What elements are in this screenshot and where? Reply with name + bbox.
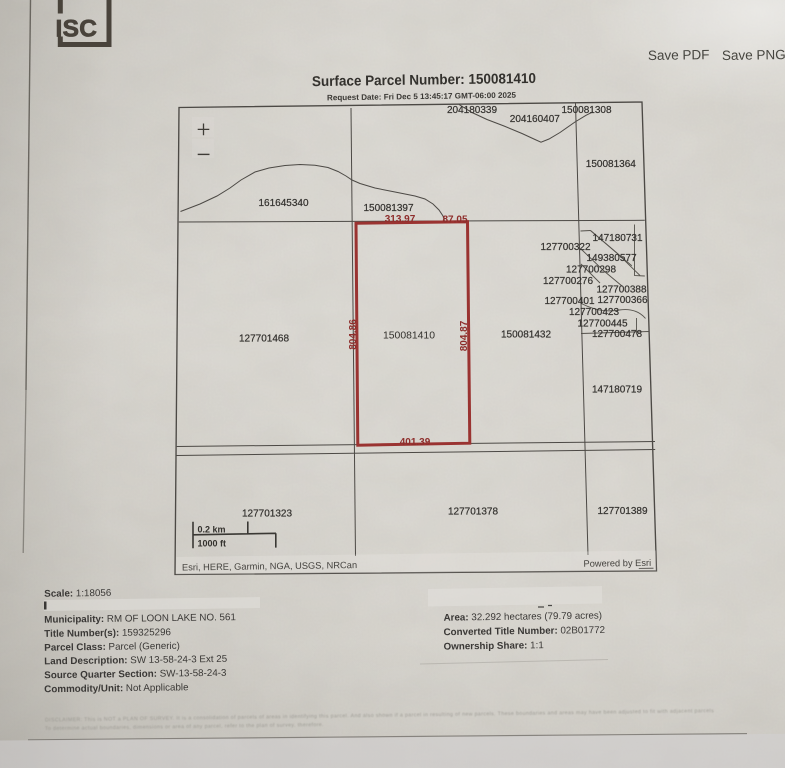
svg-text:127700423: 127700423	[569, 307, 619, 318]
svg-text:401.39: 401.39	[400, 437, 431, 448]
svg-text:804.87: 804.87	[459, 320, 470, 351]
svg-text:127700276: 127700276	[543, 276, 593, 287]
svg-text:804.86: 804.86	[348, 319, 359, 350]
svg-text:127700478: 127700478	[592, 329, 642, 340]
svg-text:127701389: 127701389	[597, 506, 647, 517]
svg-text:127701378: 127701378	[448, 507, 498, 518]
svg-text:150081397: 150081397	[363, 203, 413, 214]
svg-text:127700445: 127700445	[577, 319, 627, 330]
svg-text:Commodity/Unit: Not Applicable: Commodity/Unit: Not Applicable	[44, 682, 189, 695]
svg-text:0.2 km: 0.2 km	[198, 524, 226, 534]
svg-text:150081364: 150081364	[586, 159, 636, 170]
svg-text:127700366: 127700366	[597, 295, 647, 306]
svg-text:204160407: 204160407	[510, 114, 560, 125]
svg-text:Save PNG: Save PNG	[722, 47, 785, 63]
svg-text:150081432: 150081432	[501, 329, 551, 340]
svg-text:Area: 32.292 hectares (79.79 a: Area: 32.292 hectares (79.79 acres)	[443, 610, 602, 623]
svg-text:127700388: 127700388	[596, 285, 646, 296]
svg-text:147180719: 147180719	[592, 385, 642, 396]
svg-text:Scale: 1:18056: Scale: 1:18056	[44, 588, 112, 600]
svg-text:Parcel Class: Parcel (Generic): Parcel Class: Parcel (Generic)	[44, 641, 180, 654]
svg-text:204180339: 204180339	[447, 105, 497, 116]
svg-text:87.05: 87.05	[442, 214, 467, 225]
svg-text:127701468: 127701468	[239, 333, 289, 344]
svg-text:150081410: 150081410	[383, 331, 435, 342]
svg-text:1000 ft: 1000 ft	[198, 538, 227, 548]
svg-text:Title Number(s): 159325296: Title Number(s): 159325296	[44, 627, 171, 640]
svg-text:150081308: 150081308	[561, 105, 611, 116]
svg-text:Powered by Esri: Powered by Esri	[583, 558, 651, 569]
svg-text:149380577: 149380577	[586, 253, 636, 264]
svg-text:Surface Parcel Number: 1500814: Surface Parcel Number: 150081410	[312, 71, 536, 90]
svg-text:Save PDF: Save PDF	[648, 47, 710, 63]
svg-text:127700298: 127700298	[566, 265, 616, 276]
svg-text:ISC: ISC	[56, 15, 98, 42]
svg-text:127701323: 127701323	[242, 509, 292, 520]
svg-text:147180731: 147180731	[592, 233, 642, 244]
svg-text:Converted Title Number: 02B017: Converted Title Number: 02B01772	[443, 625, 605, 638]
svg-text:127700322: 127700322	[540, 242, 590, 253]
svg-text:313.97: 313.97	[385, 214, 416, 225]
svg-text:Ownership Share: 1:1: Ownership Share: 1:1	[443, 640, 543, 652]
svg-text:127700401: 127700401	[544, 296, 594, 307]
svg-text:161645340: 161645340	[258, 198, 308, 209]
